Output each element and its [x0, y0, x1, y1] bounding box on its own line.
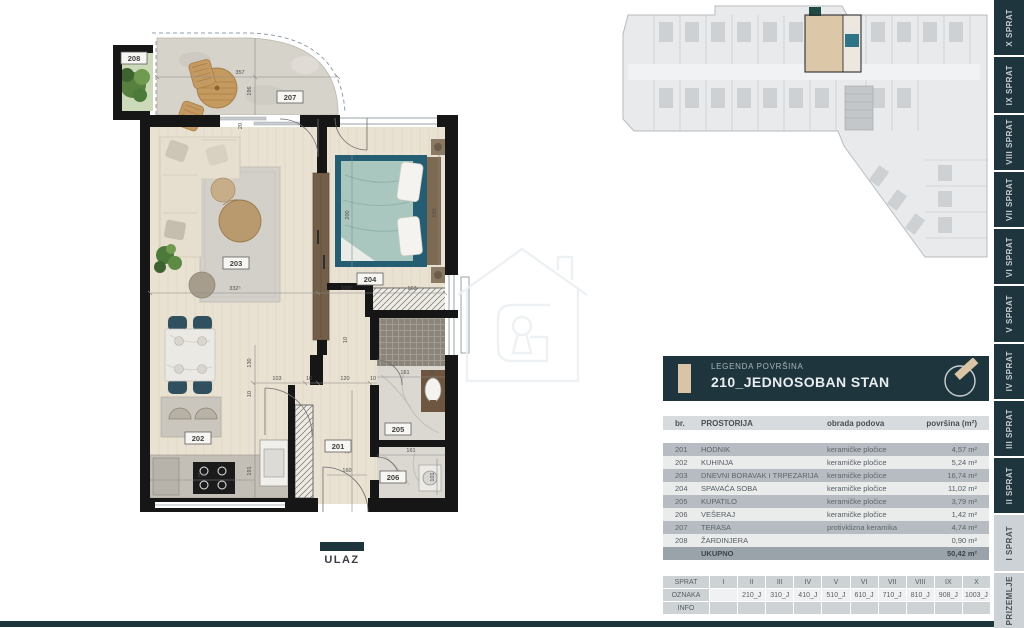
bed	[335, 139, 446, 283]
dim-veseraj-h: 101	[430, 472, 436, 481]
oznaka-cell[interactable]: 510_J	[822, 589, 849, 601]
oznaka-cell[interactable]: 710_J	[879, 589, 906, 601]
floors-table: SPRAT I II III IV V VI VII VIII IX X OZN…	[663, 576, 990, 614]
sidebar-item-x-sprat[interactable]: X SPRAT	[994, 0, 1024, 55]
dim-ten-b: 10	[370, 376, 376, 382]
oznaka-cell[interactable]: 1003_J	[963, 589, 990, 601]
table-total-row: UKUPNO50,42 m²	[663, 547, 989, 560]
dim-ten-c: 10	[247, 391, 253, 397]
dim-terrace-h: 196	[247, 86, 253, 95]
building-overview-plan	[620, 0, 992, 270]
oznaka-cell[interactable]: 810_J	[907, 589, 934, 601]
table-row: 207TERASAprotivklizna keramika4,74 m²	[663, 521, 989, 534]
dim-dining-h: 130	[247, 358, 253, 367]
dim-bed-r: 190	[432, 208, 438, 217]
oznaka-cell[interactable]: 310_J	[766, 589, 793, 601]
dim-hall-w: 160	[342, 468, 351, 474]
room-label-207: 207	[284, 93, 297, 102]
floors-oznaka-label: OZNAKA	[663, 589, 709, 601]
dim-terrace-w: 357	[235, 70, 244, 76]
floors-info-label: INFO	[663, 602, 709, 614]
room-label-204: 204	[364, 275, 377, 284]
dim-corridor-w: 120	[340, 376, 349, 382]
bottom-divider-bar	[0, 621, 994, 627]
room-label-208: 208	[128, 54, 141, 63]
sidebar-item-v-sprat[interactable]: V SPRAT	[994, 286, 1024, 341]
dim-veseraj-w: 161	[406, 448, 415, 454]
entrance-label: ULAZ	[324, 554, 359, 566]
floors-sprat-label: SPRAT	[663, 576, 709, 588]
total-area: 50,42 m²	[919, 549, 989, 558]
oznaka-cell[interactable]: 410_J	[794, 589, 821, 601]
dim-bath-w2: 25	[429, 370, 435, 375]
hall-closet	[295, 405, 313, 498]
sidebar-item-prizemlje[interactable]: PRIZEMLJE	[994, 573, 1024, 628]
highlighted-unit	[805, 7, 861, 72]
dim-bed-l: 200	[345, 210, 351, 219]
sidebar-item-i-sprat[interactable]: I SPRAT	[994, 515, 1024, 570]
dim-wall20: 20	[238, 123, 244, 129]
table-row: 203DNEVNI BORAVAK I TRPEZARIJAkeramičke …	[663, 469, 989, 482]
room-label-203: 203	[230, 259, 243, 268]
legend-table: br. PROSTORIJA obrada podova površina (m…	[663, 416, 989, 560]
dim-kitchen-h: 191	[247, 466, 253, 475]
total-label: UKUPNO	[701, 549, 827, 558]
sidebar-item-vii-sprat[interactable]: VII SPRAT	[994, 172, 1024, 227]
page: 357 196 20 332⁵ 101⁵ 163 103 10 120 10 1…	[0, 0, 1024, 628]
col-name: PROSTORIJA	[701, 419, 827, 428]
room-label-202: 202	[192, 434, 205, 443]
legend-panel: LEGENDA POVRŠINA 210_JEDNOSOBAN STAN br.…	[663, 356, 989, 560]
sidebar-item-viii-sprat[interactable]: VIII SPRAT	[994, 115, 1024, 170]
dim-kitchen-w: 274	[197, 473, 206, 479]
oznaka-cell[interactable]: 610_J	[851, 589, 878, 601]
apartment-floor-plan: 357 196 20 332⁵ 101⁵ 163 103 10 120 10 1…	[105, 25, 485, 575]
dim-wardrobe-w: 163	[407, 286, 416, 292]
table-row: 208ŽARDINJERA0,90 m²	[663, 534, 989, 547]
table-row: 204SPAVAĆA SOBAkeramičke pločice11,02 m²	[663, 482, 989, 495]
kitchen-island	[161, 397, 221, 437]
sidebar-item-iii-sprat[interactable]: III SPRAT	[994, 401, 1024, 456]
fridge	[260, 440, 288, 486]
house-logo-watermark-icon	[450, 243, 595, 388]
legend-header: LEGENDA POVRŠINA 210_JEDNOSOBAN STAN	[663, 356, 989, 401]
oznaka-cell[interactable]: 908_J	[935, 589, 962, 601]
dim-living-w: 332⁵	[229, 285, 240, 292]
sidebar-item-vi-sprat[interactable]: VI SPRAT	[994, 229, 1024, 284]
compass-icon	[939, 358, 981, 400]
stair-core	[845, 86, 873, 130]
dim-ten-d: 10	[343, 337, 349, 343]
legend-accent-bar-icon	[678, 364, 691, 393]
dim-opening: 103	[272, 376, 281, 382]
legend-subtitle: LEGENDA POVRŠINA	[711, 362, 890, 371]
dim-bath-w: 161	[400, 370, 409, 376]
table-row: 206VEŠERAJkeramičke pločice1,42 m²	[663, 508, 989, 521]
room-label-206: 206	[387, 473, 400, 482]
dim-ten-a: 10	[306, 376, 312, 382]
col-br: br.	[663, 419, 701, 428]
room-label-201: 201	[332, 442, 345, 451]
sidebar-item-ix-sprat[interactable]: IX SPRAT	[994, 57, 1024, 112]
legend-table-header: br. PROSTORIJA obrada podova površina (m…	[663, 416, 989, 430]
col-floor: obrada podova	[827, 419, 919, 428]
terrace	[152, 33, 345, 115]
floor-tabs-sidebar: X SPRAT IX SPRAT VIII SPRAT VII SPRAT VI…	[994, 0, 1024, 628]
bathroom	[377, 318, 445, 440]
oznaka-cell[interactable]: 210_J	[738, 589, 765, 601]
entrance-marker: ULAZ	[320, 542, 364, 566]
table-row: 202KUHINJAkeramičke pločice5,24 m²	[663, 456, 989, 469]
table-row: 201HODNIKkeramičke pločice4,57 m²	[663, 443, 989, 456]
room-label-205: 205	[392, 425, 405, 434]
col-area: površina (m²)	[919, 419, 989, 428]
sidebar-item-iv-sprat[interactable]: IV SPRAT	[994, 344, 1024, 399]
legend-title: 210_JEDNOSOBAN STAN	[711, 374, 890, 390]
oznaka-cell[interactable]	[710, 589, 737, 601]
table-row: 205KUPATILOkeramičke pločice3,79 m²	[663, 495, 989, 508]
dim-hall-top-w: 101⁵	[341, 285, 352, 292]
sidebar-item-ii-sprat[interactable]: II SPRAT	[994, 458, 1024, 513]
divider-cabinet	[313, 173, 329, 340]
